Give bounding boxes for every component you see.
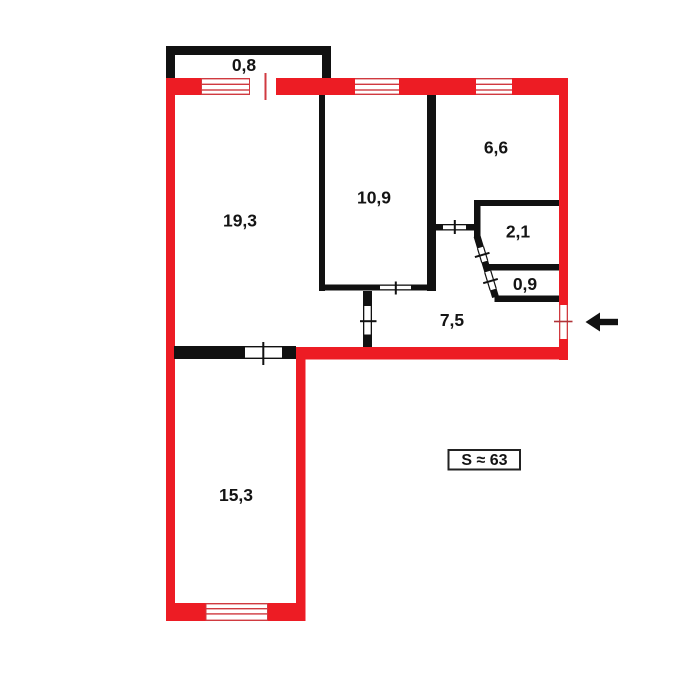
svg-text:S ≈ 63: S ≈ 63 — [461, 452, 507, 469]
svg-text:0,9: 0,9 — [513, 274, 538, 294]
svg-text:7,5: 7,5 — [440, 310, 465, 330]
svg-text:19,3: 19,3 — [223, 211, 257, 231]
svg-text:15,3: 15,3 — [219, 485, 253, 505]
svg-text:2,1: 2,1 — [506, 222, 531, 242]
svg-text:0,8: 0,8 — [232, 55, 257, 75]
svg-text:6,6: 6,6 — [484, 138, 509, 158]
svg-text:10,9: 10,9 — [357, 188, 391, 208]
